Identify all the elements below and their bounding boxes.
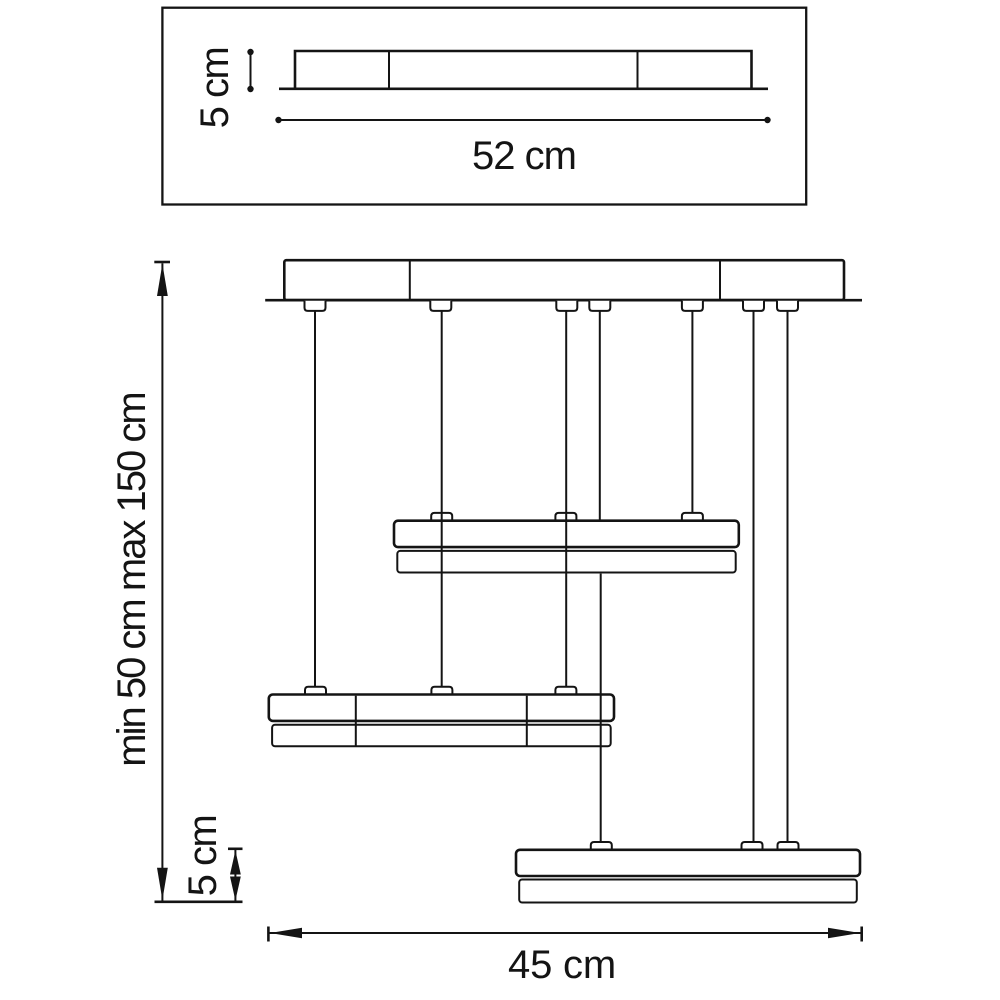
svg-text:min 50 cm max 150 cm: min 50 cm max 150 cm (110, 393, 154, 766)
svg-text:45 cm: 45 cm (508, 943, 616, 987)
svg-text:52 cm: 52 cm (472, 134, 576, 178)
svg-text:5 cm: 5 cm (193, 48, 237, 129)
svg-text:5 cm: 5 cm (181, 816, 225, 897)
